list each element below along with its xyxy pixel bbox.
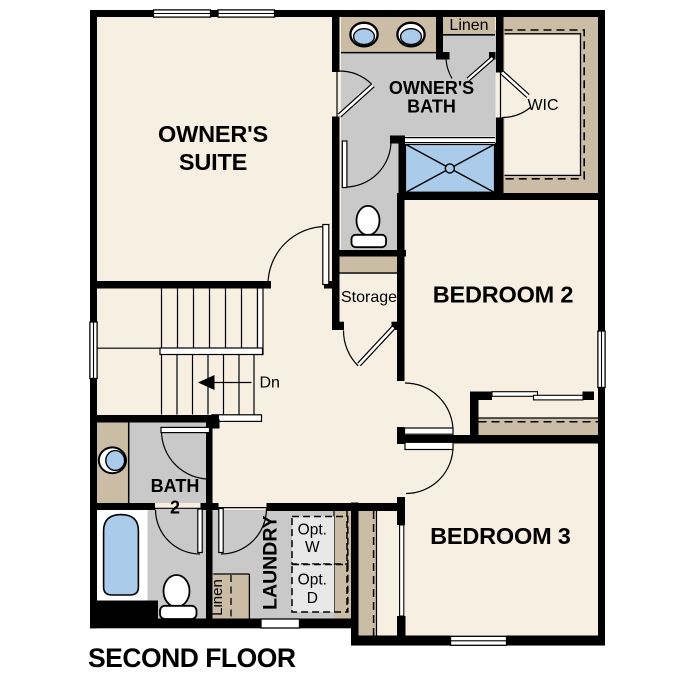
svg-text:SECOND FLOOR: SECOND FLOOR (88, 643, 296, 673)
svg-text:Storage: Storage (341, 289, 397, 306)
svg-text:LAUNDRY: LAUNDRY (259, 515, 281, 610)
svg-text:OWNER'S: OWNER'S (158, 121, 268, 147)
svg-text:D: D (307, 590, 318, 607)
svg-text:Linen: Linen (449, 17, 488, 34)
svg-text:Opt.: Opt. (298, 522, 327, 539)
svg-text:2: 2 (170, 498, 180, 518)
svg-text:BATH: BATH (151, 476, 200, 496)
svg-text:BEDROOM 2: BEDROOM 2 (433, 282, 574, 308)
svg-text:W: W (305, 539, 320, 556)
svg-text:SUITE: SUITE (179, 149, 247, 175)
svg-text:BEDROOM 3: BEDROOM 3 (430, 523, 571, 549)
svg-text:WIC: WIC (527, 97, 558, 114)
svg-text:BATH: BATH (407, 97, 456, 117)
svg-text:Dn: Dn (260, 375, 280, 392)
svg-text:OWNER'S: OWNER'S (389, 78, 474, 98)
svg-text:Opt.: Opt. (298, 571, 327, 588)
